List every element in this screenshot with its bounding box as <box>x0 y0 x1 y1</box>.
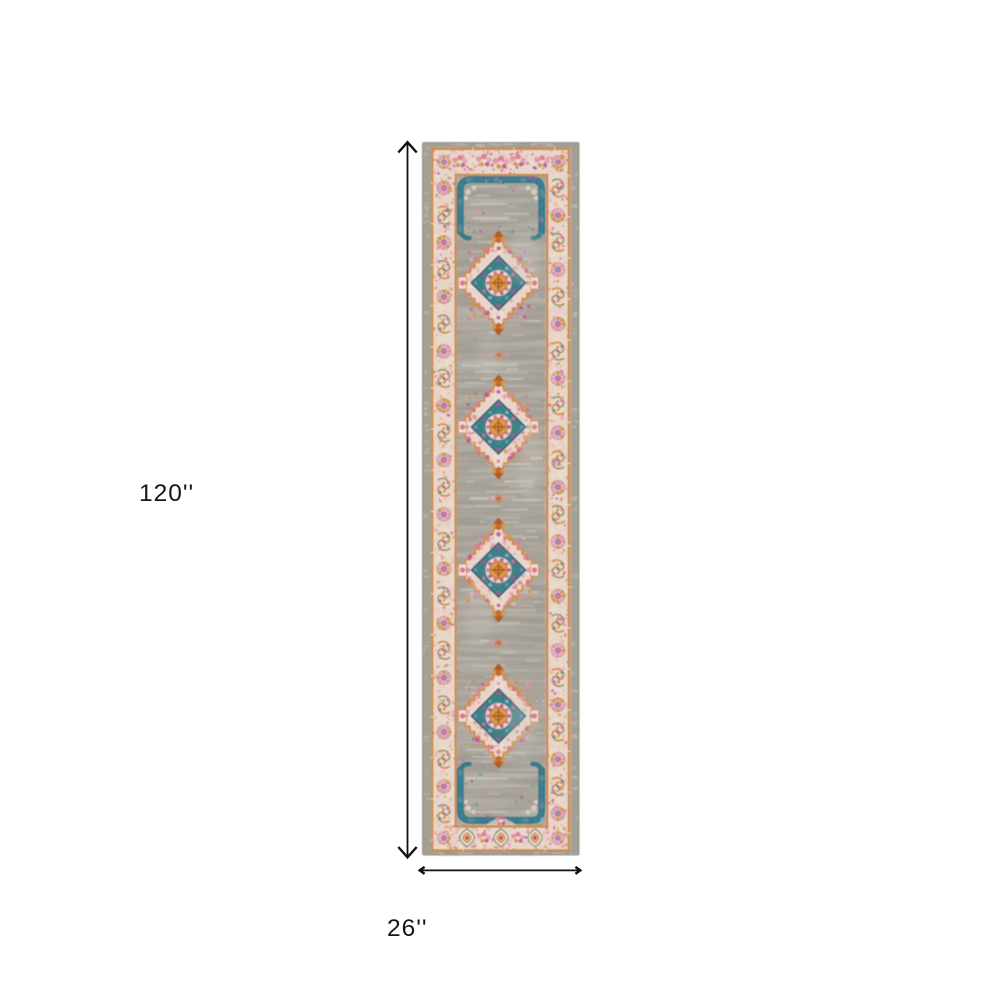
svg-text:120'': 120'' <box>139 480 194 507</box>
svg-text:26'': 26'' <box>387 915 428 942</box>
